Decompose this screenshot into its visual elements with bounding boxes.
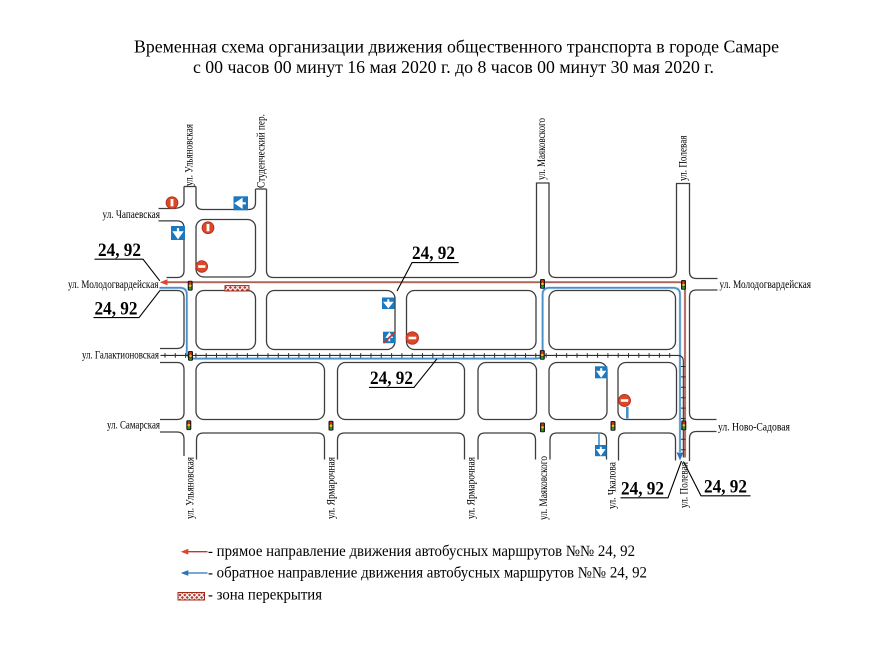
svg-text:ул. Молодогвардейская: ул. Молодогвардейская	[720, 279, 812, 291]
svg-text:ул. Чкалова: ул. Чкалова	[607, 462, 619, 509]
svg-text:ул. Полевая: ул. Полевая	[679, 462, 691, 508]
svg-text:ул. Чапаевская: ул. Чапаевская	[103, 209, 161, 221]
svg-text:- зона перекрытия: - зона перекрытия	[208, 587, 322, 604]
svg-text:ул. Маяковского: ул. Маяковского	[536, 118, 548, 180]
svg-text:24, 92: 24, 92	[370, 369, 413, 389]
svg-text:с 00 часов 00 минут 16 мая 202: с 00 часов 00 минут 16 мая 2020 г. до 8 …	[193, 57, 714, 77]
svg-text:ул. Ярмарочная: ул. Ярмарочная	[466, 457, 478, 519]
svg-text:24, 92: 24, 92	[98, 241, 141, 261]
svg-text:ул. Ульяновская: ул. Ульяновская	[184, 124, 196, 186]
svg-text:ул. Ново-Садовая: ул. Ново-Садовая	[718, 422, 790, 434]
svg-text:ул. Маяковского: ул. Маяковского	[538, 456, 550, 520]
svg-text:ул. Самарская: ул. Самарская	[107, 420, 160, 432]
svg-text:24, 92: 24, 92	[412, 244, 455, 264]
svg-text:ул. Полевая: ул. Полевая	[678, 136, 690, 182]
svg-text:ул. Галактионовская: ул. Галактионовская	[82, 349, 159, 361]
svg-text:ул. Ярмарочная: ул. Ярмарочная	[326, 457, 338, 519]
svg-text:24, 92: 24, 92	[95, 299, 138, 319]
svg-text:Студенческий пер.: Студенческий пер.	[256, 114, 268, 188]
svg-text:- обратное направление движени: - обратное направление движения автобусн…	[208, 565, 647, 582]
svg-text:- прямое направление движения: - прямое направление движения автобусных…	[208, 543, 635, 560]
svg-text:24, 92: 24, 92	[704, 477, 747, 497]
svg-text:ул. Молодогвардейская: ул. Молодогвардейская	[68, 279, 159, 291]
svg-text:24, 92: 24, 92	[621, 479, 664, 499]
svg-text:ул. Ульяновская: ул. Ульяновская	[185, 457, 197, 519]
svg-text:Временная схема организации дв: Временная схема организации движения общ…	[134, 36, 779, 56]
